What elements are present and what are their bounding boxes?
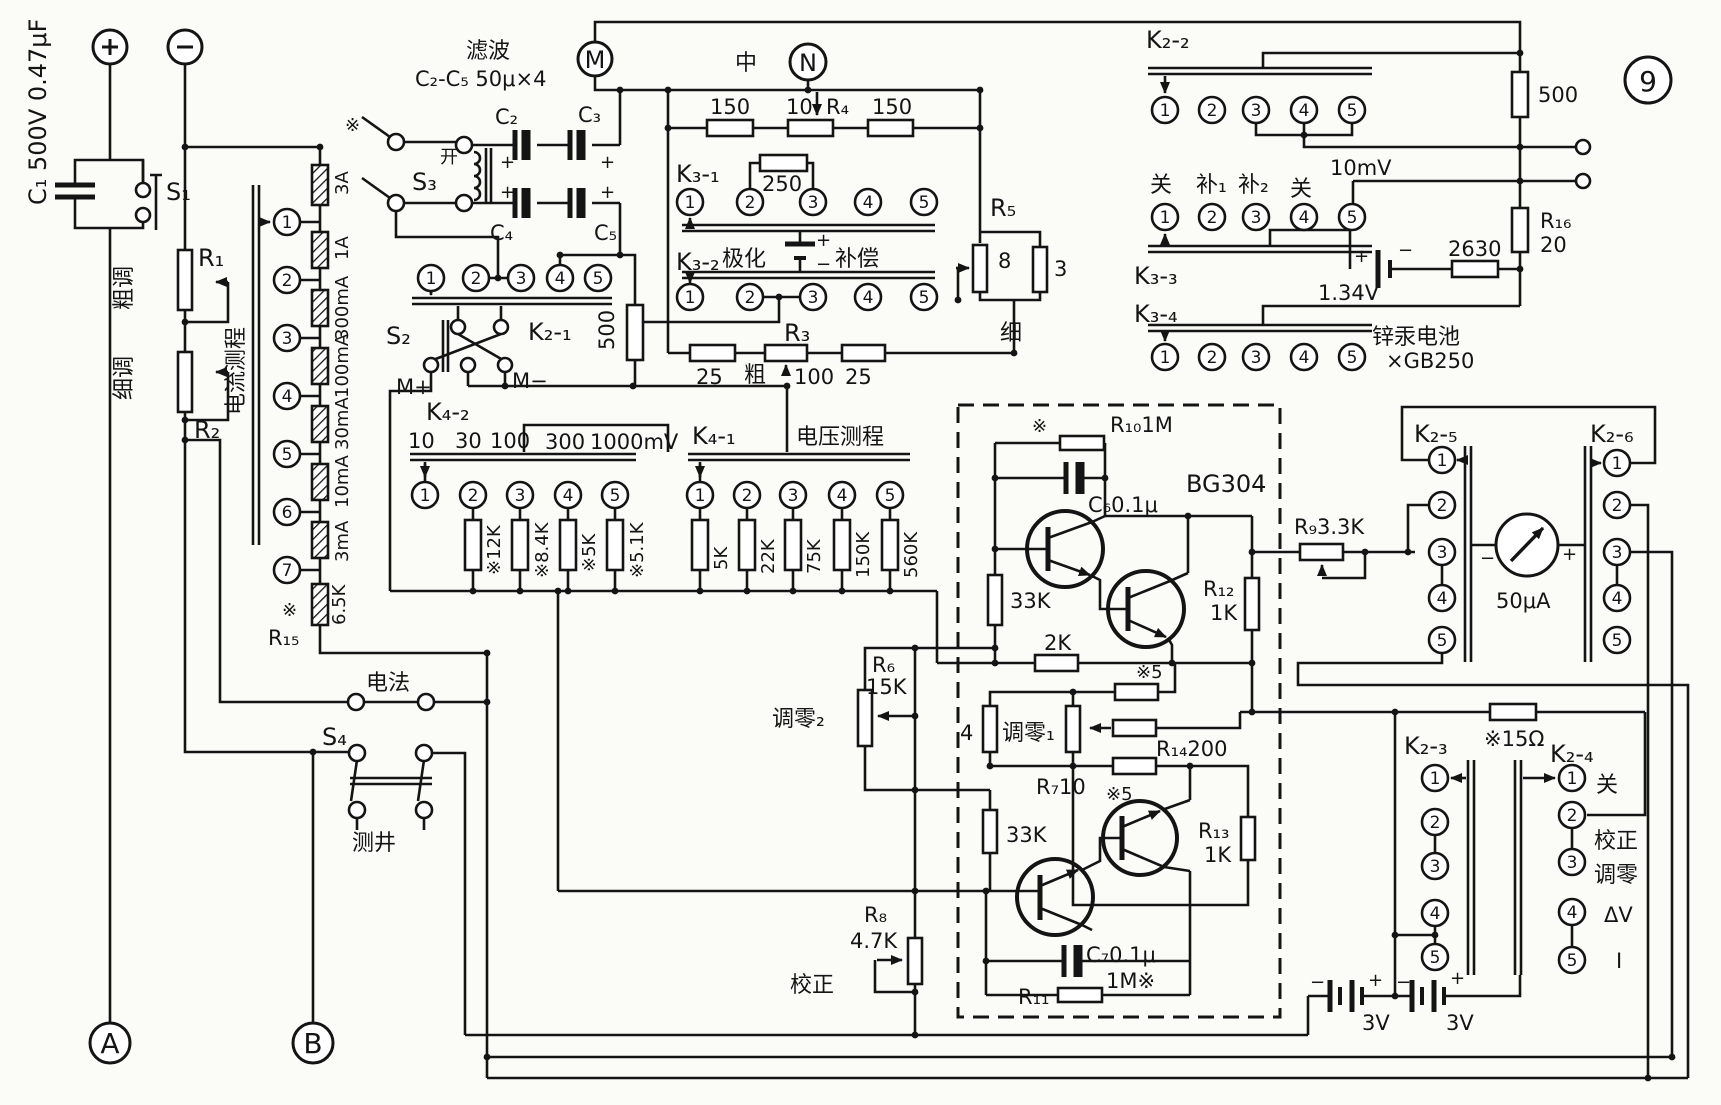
label-cejing: 测井: [352, 831, 396, 856]
label-10mv-pos: 10: [408, 429, 435, 453]
contact-number: 4: [1430, 904, 1441, 924]
contact-number: 3: [1430, 857, 1441, 877]
contact-number: 5: [1612, 631, 1623, 651]
contact-number: 5: [1347, 208, 1358, 228]
label-guan-2: 关: [1290, 177, 1312, 202]
contact-number: 2: [282, 271, 293, 291]
plus-mark: +: [816, 230, 831, 251]
label-r13-value: 1K: [1204, 843, 1232, 867]
label-r15: R₁₅: [268, 626, 299, 650]
label-33k-lower: 33K: [1006, 823, 1048, 847]
label-r4: R₄: [826, 95, 849, 119]
contact-number: 2: [745, 193, 756, 213]
contact-number: 5: [610, 486, 621, 506]
contact-number: 2: [1567, 806, 1578, 826]
label-s4: S₄: [322, 723, 347, 751]
label-c5: C₅: [594, 221, 617, 245]
contact-number: 4: [1299, 101, 1310, 121]
contact-number: 3: [1612, 543, 1623, 563]
contact-number: 3: [282, 329, 293, 349]
label-r14: R₁₄200: [1156, 737, 1228, 761]
contact-number: 4: [1299, 208, 1310, 228]
plus-mark: +: [1354, 246, 1369, 267]
label-20: 20: [1540, 233, 1567, 257]
label-3: 3: [1054, 257, 1067, 281]
label-150-right: 150: [872, 95, 912, 119]
label-r16: R₁₆: [1540, 209, 1571, 233]
contact-number: 3: [1437, 543, 1448, 563]
label-c6: C₆0.1μ: [1088, 493, 1158, 517]
minus-mark: −: [1398, 240, 1413, 261]
star-mark: ※: [282, 600, 297, 621]
contact-number: 1: [420, 486, 431, 506]
label-25-left: 25: [696, 365, 723, 389]
label-k42: K₄-₂: [426, 398, 470, 426]
plus-mark: +: [500, 152, 515, 173]
label-3v-left: 3V: [1362, 1011, 1390, 1035]
label-filter: 滤波: [466, 39, 510, 64]
label-10ma: 10mA: [332, 455, 353, 508]
label-k24: K₂-₄: [1550, 740, 1594, 768]
contact-number: 4: [837, 486, 848, 506]
contact-number: 5: [1437, 631, 1448, 651]
label-k26: K₂-₆: [1590, 420, 1634, 448]
contact-number: 4: [863, 193, 874, 213]
contact-number: 3: [808, 288, 819, 308]
label-m: M: [585, 46, 606, 74]
star-mark: ※: [345, 115, 360, 136]
label-m-plus: M+: [396, 375, 432, 399]
contact-number: 1: [1567, 769, 1578, 789]
label-15k: 15K: [866, 675, 908, 699]
label-c2: C₂: [495, 105, 518, 129]
schematic-page: 1 2 3 4 5 6 7 1 2 3 4 5 1 2 3 4 5 1 2 3 …: [0, 0, 1721, 1105]
label-k21: K₂-₁: [528, 318, 572, 346]
label-2k: 2K: [1044, 631, 1072, 655]
label-500-top: 500: [1538, 83, 1578, 107]
label-a: A: [100, 1027, 119, 1060]
s3-coil: [474, 152, 480, 200]
label-i: I: [1616, 949, 1622, 973]
label-s1: S₁: [166, 178, 191, 206]
label-bu1: 补₁: [1196, 173, 1227, 198]
label-10-r4: 10: [786, 95, 813, 119]
contact-number: 1: [282, 213, 293, 233]
contact-number: 2: [468, 486, 479, 506]
label-xi: 细: [1000, 321, 1022, 346]
label-cu: 粗: [744, 363, 766, 388]
label-15ohm: ※15Ω: [1484, 727, 1544, 751]
contact-number: 2: [1612, 496, 1623, 516]
contact-number: 1: [1160, 101, 1171, 121]
label-star5-top: ※5: [1136, 662, 1163, 683]
label-s3: S₃: [412, 168, 437, 196]
label-k25: K₂-₅: [1414, 420, 1458, 448]
label-bg304: BG304: [1186, 470, 1266, 498]
label-10mv: 10mV: [1330, 156, 1392, 180]
label-fig9: 9: [1639, 65, 1657, 98]
label-50ua: 50μA: [1496, 589, 1551, 613]
minus-mark: −: [1480, 548, 1495, 569]
label-300: 300: [545, 430, 585, 454]
contact-number: 4: [563, 486, 574, 506]
contact-number: 5: [1347, 101, 1358, 121]
label-r3: R₃: [784, 319, 810, 347]
contact-number: 2: [745, 288, 756, 308]
label-delta-v: ΔV: [1604, 903, 1633, 927]
label-c1: C₁ 500V 0.47μF: [24, 19, 52, 205]
contact-number: 4: [282, 387, 293, 407]
label-100ma: 100mA: [332, 333, 353, 398]
plus-mark: +: [1368, 970, 1383, 991]
label-c3: C₃: [578, 103, 601, 127]
label-r8: R₈: [864, 903, 887, 927]
label-33k-upper: 33K: [1010, 589, 1052, 613]
label-r1: R₁: [198, 244, 224, 272]
label-r13: R₁₃: [1198, 819, 1229, 843]
label-3a: 3A: [332, 171, 353, 195]
label-k22: K₂-₂: [1146, 26, 1190, 54]
contact-number: 5: [593, 269, 604, 289]
contact-number: 2: [1207, 208, 1218, 228]
label-r10: R₁₀1M: [1110, 413, 1173, 437]
contact-number: 5: [919, 288, 930, 308]
contact-number: 4: [1299, 348, 1310, 368]
label-8p4k: ※8.4K: [532, 521, 553, 578]
label-zhong: 中: [735, 51, 757, 76]
label-4p7k: 4.7K: [850, 929, 898, 953]
label-r6: R₆: [872, 653, 895, 677]
contact-number: 5: [885, 486, 896, 506]
label-voltage-range: 电压测程: [796, 425, 884, 450]
label-25-right: 25: [845, 365, 872, 389]
contact-number: 5: [1347, 348, 1358, 368]
contact-number: 1: [1612, 454, 1623, 474]
contact-number: 3: [1567, 853, 1578, 873]
s1-plunger: [150, 175, 162, 230]
label-fine-adjust: 细调: [112, 356, 137, 400]
plus-mark: +: [1450, 968, 1465, 989]
label-k33: K₃-₃: [1134, 262, 1178, 290]
contact-number: 1: [1160, 208, 1171, 228]
label-2630: 2630: [1448, 237, 1501, 261]
label-jihua: 极化: [722, 247, 766, 272]
label-4: 4: [960, 721, 973, 745]
label-n: N: [799, 49, 817, 77]
label-1m-star: 1M※: [1106, 969, 1155, 993]
plus-mark: +: [600, 182, 615, 203]
label-1p34v: 1.34V: [1318, 281, 1380, 305]
label-s2: S₂: [386, 322, 411, 350]
contact-number: 3: [516, 269, 527, 289]
label-kai: 开: [440, 147, 458, 168]
contact-number: 2: [1207, 101, 1218, 121]
contact-number: 6: [282, 503, 293, 523]
contact-number: 4: [1612, 589, 1623, 609]
label-8: 8: [998, 249, 1011, 273]
plus-mark: +: [1562, 544, 1577, 565]
label-star5-bottom: ※5: [1106, 784, 1133, 805]
label-current-range: 电流测程: [224, 327, 249, 415]
label-k32: K₃-₂: [676, 248, 720, 276]
contact-number: 2: [1437, 496, 1448, 516]
label-250: 250: [762, 172, 802, 196]
label-gb250: ×GB250: [1386, 349, 1474, 373]
minus-mark: −: [1310, 972, 1325, 993]
label-r2: R₂: [194, 416, 220, 444]
contact-number: 4: [555, 269, 566, 289]
label-jiaozheng-r8: 校正: [790, 973, 834, 998]
label-buchang: 补偿: [835, 247, 879, 272]
label-500-mid: 500: [595, 310, 619, 350]
contact-number: 2: [1430, 813, 1441, 833]
label-75k: 75K: [804, 538, 825, 574]
label-r5: R₅: [990, 194, 1016, 222]
contact-number: 5: [1430, 948, 1441, 968]
contact-number: 3: [788, 486, 799, 506]
contact-number: 1: [695, 486, 706, 506]
contact-digits: 1 2 3 4 5 6 7 1 2 3 4 5 1 2 3 4 5 1 2 3 …: [282, 101, 1623, 971]
label-tiaoling-k24: 调零: [1594, 863, 1638, 888]
contact-number: 1: [426, 269, 437, 289]
label-1a: 1A: [332, 236, 353, 260]
contact-number: 4: [1567, 903, 1578, 923]
label-r7: R₇10: [1036, 775, 1086, 799]
label-r12-value: 1K: [1210, 601, 1238, 625]
contact-number: 3: [1251, 348, 1262, 368]
label-b: B: [303, 1027, 322, 1060]
minus-mark: −: [816, 254, 831, 275]
label-560k: 560K: [901, 531, 922, 578]
contact-number: 1: [685, 193, 696, 213]
contact-number: 5: [282, 445, 293, 465]
label-12k: ※12K: [484, 524, 505, 575]
contact-number: 1: [1437, 451, 1448, 471]
label-r11: R₁₁: [1018, 985, 1049, 1009]
label-k23: K₂-₃: [1404, 732, 1448, 760]
label-dianfa: 电法: [366, 671, 410, 696]
contact-number: 2: [1207, 348, 1218, 368]
label-jiaozheng-k24: 校正: [1594, 829, 1638, 854]
contact-number: 1: [1430, 769, 1441, 789]
label-1000mv: 1000mV: [590, 430, 679, 454]
label-5k: 5K: [711, 546, 732, 570]
contact-number: 1: [685, 288, 696, 308]
contact-number: 4: [863, 288, 874, 308]
contact-number: 4: [1437, 589, 1448, 609]
label-150k: 150K: [853, 531, 874, 578]
contact-number: 3: [515, 486, 526, 506]
label-bu2: 补₂: [1238, 173, 1269, 198]
label-30: 30: [455, 429, 482, 453]
label-3ma: 3mA: [332, 520, 353, 562]
label-guan-k24: 关: [1596, 773, 1618, 798]
plus-mark: +: [500, 182, 515, 203]
label-k34: K₃-₄: [1134, 300, 1178, 328]
label-22k: 22K: [758, 538, 779, 574]
label-k41: K₄-₁: [692, 422, 736, 450]
contact-number: 1: [1160, 348, 1171, 368]
label-100: 100: [490, 429, 530, 453]
contact-number: 5: [1567, 951, 1578, 971]
label-300ma: 300mA: [332, 275, 353, 340]
label-5p1k: ※5.1K: [627, 521, 648, 578]
contact-number: 3: [1251, 101, 1262, 121]
contact-number: 3: [808, 193, 819, 213]
star-mark: ※: [1032, 416, 1047, 437]
label-k31: K₃-₁: [676, 160, 720, 188]
label-r12: R₁₂: [1203, 577, 1234, 601]
label-c2c5: C₂-C₅ 50μ×4: [415, 67, 546, 91]
label-r9: R₉3.3K: [1294, 515, 1365, 539]
label-battery-type: 锌汞电池: [1372, 325, 1460, 350]
label-tiaoling1: 调零₁: [1002, 721, 1055, 746]
contact-number: 7: [282, 561, 293, 581]
label-150-left: 150: [710, 95, 750, 119]
label-c7: C₇0.1μ: [1086, 943, 1156, 967]
label-100-r3: 100: [794, 365, 834, 389]
contact-number: 3: [1251, 208, 1262, 228]
label-3v-right: 3V: [1446, 1011, 1474, 1035]
plus-mark: +: [600, 152, 615, 173]
contact-number: 2: [742, 486, 753, 506]
label-guan-1: 关: [1150, 173, 1172, 198]
label-tiaoling2: 调零₂: [772, 707, 825, 732]
label-6p5k: 6.5K: [329, 583, 350, 625]
circuit-diagram: 1 2 3 4 5 6 7 1 2 3 4 5 1 2 3 4 5 1 2 3 …: [0, 0, 1721, 1105]
label-c4: C₄: [490, 221, 513, 245]
label-30ma: 30mA: [332, 397, 353, 450]
label-m-minus: M−: [512, 369, 548, 393]
label-coarse-adjust: 粗调: [112, 266, 137, 310]
contact-number: 5: [919, 193, 930, 213]
contact-number: 2: [471, 269, 482, 289]
minus-mark: −: [1396, 972, 1411, 993]
label-5k-star: ※5K: [579, 532, 600, 572]
